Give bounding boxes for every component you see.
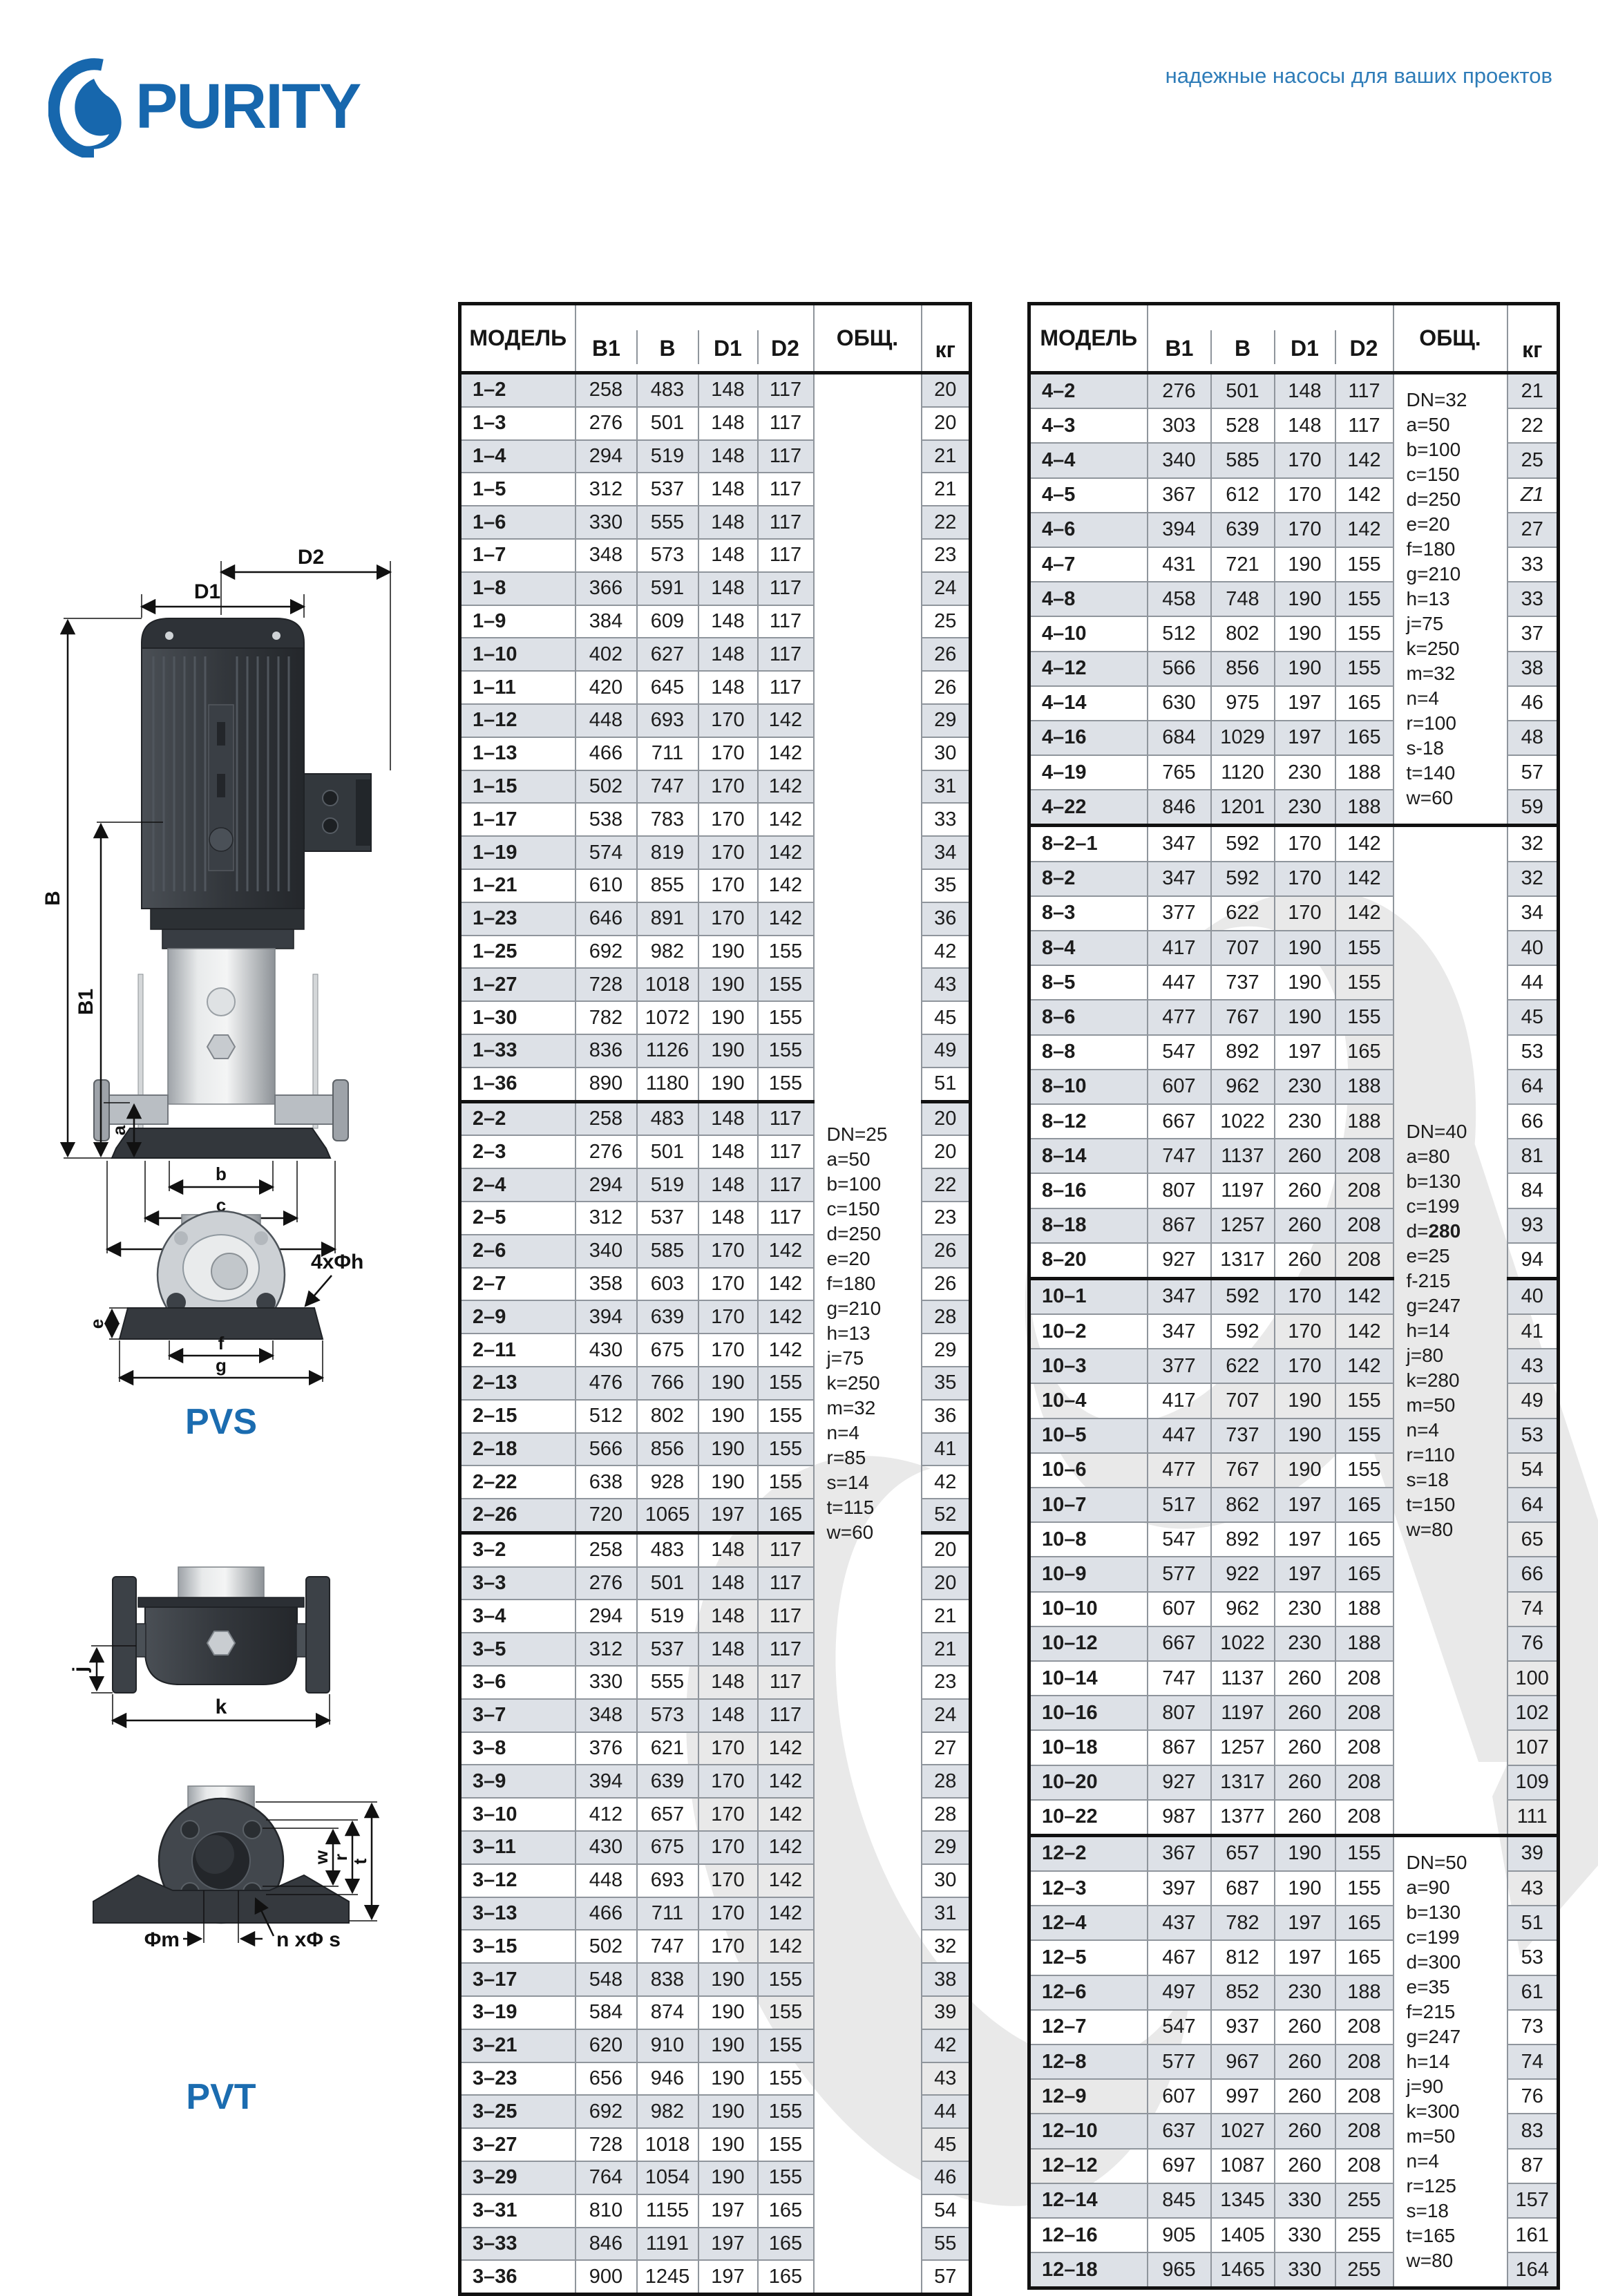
column-header-b1: B1 [576,304,637,373]
model-cell: 1–25 [460,936,576,969]
dimension-cell: 905 [1148,2218,1211,2252]
dimension-cell: 537 [637,1202,698,1235]
weight-cell: 34 [922,836,971,869]
general-dimensions-note: DN=50a=90b=130c=199d=300e=35f=215g=247h=… [1394,1835,1507,2288]
dimension-cell: 197 [1275,1522,1335,1557]
dimension-cell: 483 [637,1533,698,1566]
note-line: g=247 [1407,2024,1507,2049]
dimension-cell: 810 [576,2194,637,2228]
model-cell: 1–19 [460,836,576,869]
weight-cell: 35 [922,869,971,902]
dimension-cell: 165 [1335,1940,1394,1975]
dimension-cell: 165 [1335,686,1394,721]
dimension-cell: 148 [698,1666,758,1699]
dimension-cell: 592 [1211,1278,1275,1314]
dimension-cell: 155 [758,1465,814,1499]
dimension-cell: 517 [1148,1488,1211,1522]
logo-swirl [75,79,121,149]
dimension-cell: 155 [758,1068,814,1101]
dimension-cell: 577 [1148,2044,1211,2079]
dimension-cell: 852 [1211,1975,1275,2010]
note-line: DN=40 [1407,1119,1507,1144]
dimension-cell: 170 [698,1831,758,1864]
weight-cell: 24 [922,1699,971,1732]
dimension-cell: 155 [758,2128,814,2161]
dimension-cell: 155 [1335,582,1394,616]
dimension-cell: 170 [698,836,758,869]
weight-cell: 26 [922,638,971,671]
dimension-cell: 155 [758,2062,814,2096]
dimension-cell: 148 [698,605,758,638]
note-line: h=13 [1407,587,1507,611]
weight-cell: 25 [922,605,971,638]
note-line: b=130 [1407,1169,1507,1194]
weight-cell: 20 [922,1567,971,1600]
left-port-flange [113,1577,136,1693]
note-line: r=110 [1407,1443,1507,1468]
model-cell: 4–5 [1029,478,1148,513]
dimension-cell: 607 [1148,2079,1211,2114]
dimension-cell: 188 [1335,1626,1394,1661]
dimension-cell: 165 [1335,1557,1394,1591]
column-header-кг: кг [922,304,971,373]
dimension-cell: 962 [1211,1592,1275,1626]
dimension-cell: 190 [1275,965,1335,1000]
dimension-cell: 260 [1275,1243,1335,1279]
dimension-cell: 367 [1148,1835,1211,1871]
note-line: f-215 [1407,1269,1507,1293]
dimension-cell: 1377 [1211,1800,1275,1836]
dimension-cell: 856 [1211,652,1275,686]
dimension-cell: 767 [1211,1000,1275,1034]
dimension-cell: 667 [1148,1626,1211,1661]
dimension-cell: 692 [576,2095,637,2128]
dimension-cell: 197 [698,2260,758,2294]
note-line: f=180 [1407,537,1507,562]
note-line: j=75 [827,1346,921,1371]
weight-cell: 39 [922,1996,971,2029]
dimension-cell: 188 [1335,1104,1394,1139]
bolt-callout-top: 4xΦh [311,1251,363,1273]
model-cell: 3–36 [460,2260,576,2294]
bolt-callout-bottom: n xΦ s [276,1928,341,1951]
model-cell: 8–10 [1029,1070,1148,1104]
note-line: b=100 [1407,437,1507,462]
dimension-cell: 190 [1275,931,1335,965]
dim-a-label: a [108,1125,129,1135]
dimension-cell: 638 [576,1465,637,1499]
dimension-cell: 142 [1335,443,1394,477]
dimension-cell: 260 [1275,1173,1335,1208]
weight-cell: 40 [1507,1278,1559,1314]
weight-cell: 66 [1507,1104,1559,1139]
dimension-cell: 836 [576,1034,637,1068]
dimension-cell: 697 [1148,2149,1211,2183]
dimension-cell: 208 [1335,1139,1394,1173]
model-cell: 1–11 [460,671,576,704]
dimension-cell: 348 [576,539,637,572]
model-cell: 8–8 [1029,1035,1148,1070]
dimension-cell: 190 [1275,1383,1335,1418]
model-cell: 10–6 [1029,1453,1148,1488]
dimension-cell: 117 [758,1567,814,1600]
weight-cell: 44 [1507,965,1559,1000]
model-cell: 12–14 [1029,2183,1148,2218]
dimension-cell: 1022 [1211,1104,1275,1139]
weight-cell: 42 [922,1465,971,1499]
dimension-cell: 208 [1335,1800,1394,1836]
dimension-cell: 347 [1148,1278,1211,1314]
weight-cell: 23 [922,539,971,572]
dimension-cell: 117 [758,1168,814,1202]
weight-cell: 20 [922,1533,971,1566]
dimension-cell: 142 [1335,513,1394,547]
column-header-d1: D1 [1275,304,1335,373]
weight-cell: 22 [1507,408,1559,443]
dimension-cell: 148 [698,1567,758,1600]
dimension-cell: 1317 [1211,1765,1275,1800]
dimension-cell: 260 [1275,1730,1335,1765]
dimension-cell: 148 [698,638,758,671]
model-cell: 4–16 [1029,721,1148,755]
note-line: w=60 [1407,786,1507,810]
weight-cell: 34 [1507,896,1559,931]
dimension-cell: 639 [1211,513,1275,547]
dimension-cell: 190 [698,1367,758,1400]
dimension-cell: 707 [1211,931,1275,965]
model-cell: 12–16 [1029,2218,1148,2252]
model-cell: 2–13 [460,1367,576,1400]
dimension-cell: 512 [1148,616,1211,651]
dimension-cell: 402 [576,638,637,671]
model-cell: 1–36 [460,1068,576,1101]
model-cell: 3–7 [460,1699,576,1732]
model-cell: 4–8 [1029,582,1148,616]
weight-cell: 33 [1507,582,1559,616]
dimension-cell: 208 [1335,1730,1394,1765]
dimension-cell: 687 [1211,1871,1275,1906]
dimension-cell: 397 [1148,1871,1211,1906]
dimension-cell: 547 [1148,2010,1211,2044]
weight-cell: 161 [1507,2218,1559,2252]
dimension-cell: 170 [1275,478,1335,513]
dimension-cell: 819 [637,836,698,869]
note-line: r=100 [1407,711,1507,736]
model-cell: 2–4 [460,1168,576,1202]
table-header-row: МОДЕЛЬ B1 B D1 D2 ОБЩ. кг [460,304,971,373]
dimension-cell: 782 [576,1001,637,1034]
dim-r-label: r [330,1854,351,1861]
dim-g-label: g [216,1355,227,1376]
model-cell: 1–3 [460,407,576,440]
dimension-cell: 1465 [1211,2252,1275,2288]
dimension-cell: 547 [1148,1522,1211,1557]
pvs-front-view: D2 D1 B B1 a b c d [41,546,390,1253]
dim-b1-label: B1 [75,989,97,1015]
dimension-cell: 190 [698,2128,758,2161]
dimension-cell: 447 [1148,965,1211,1000]
pvt-label: PVT [186,2077,256,2117]
dimension-cell: 867 [1148,1208,1211,1243]
dimension-cell: 276 [1148,373,1211,409]
note-line: w=80 [1407,1517,1507,1542]
weight-cell: 164 [1507,2252,1559,2288]
dimension-cell: 519 [637,1600,698,1633]
dimension-cell: 1317 [1211,1243,1275,1279]
dimension-cell: 188 [1335,1975,1394,2010]
dimension-cell: 394 [576,1765,637,1798]
dimension-cell: 684 [1148,721,1211,755]
note-line: e=20 [1407,512,1507,537]
dimension-cell: 170 [698,737,758,770]
note-line: s-18 [1407,736,1507,761]
dimension-cell: 117 [758,1533,814,1566]
dimension-cell: 1120 [1211,755,1275,790]
dimension-cell: 728 [576,968,637,1001]
dimension-cell: 255 [1335,2218,1394,2252]
note-line: a=50 [827,1147,921,1172]
model-cell: 3–2 [460,1533,576,1566]
note-line: k=250 [827,1371,921,1396]
dimension-cell: 1126 [637,1034,698,1068]
dimension-cell: 1054 [637,2161,698,2194]
dimension-cell: 117 [1335,373,1394,409]
dimension-cell: 208 [1335,1243,1394,1279]
dimension-cell: 142 [758,1798,814,1831]
dimension-cell: 155 [1335,1835,1394,1871]
dimension-cell: 142 [758,869,814,902]
note-line: k=250 [1407,636,1507,661]
dimension-cell: 142 [758,1864,814,1897]
dimension-cell: 477 [1148,1000,1211,1034]
dimension-cell: 276 [576,407,637,440]
dimension-cell: 155 [1335,616,1394,651]
note-line: w=80 [1407,2248,1507,2273]
weight-cell: 100 [1507,1661,1559,1696]
note-line: w=60 [827,1520,921,1545]
dimension-cell: 170 [1275,1314,1335,1349]
dimension-cell: 190 [1275,1871,1335,1906]
dimension-cell: 208 [1335,1661,1394,1696]
dimension-cell: 142 [1335,1349,1394,1383]
dimension-cell: 142 [1335,862,1394,896]
weight-cell: 76 [1507,2079,1559,2114]
dimension-cell: 258 [576,373,637,407]
dimension-cell: 330 [1275,2252,1335,2288]
dimension-cell: 142 [758,704,814,737]
model-cell: 3–13 [460,1897,576,1930]
model-cell: 12–2 [1029,1835,1148,1871]
dimension-cell: 1245 [637,2260,698,2294]
dimension-cell: 639 [637,1300,698,1334]
dim-m-label: Φm [144,1928,180,1951]
pvs-label: PVS [185,1402,257,1442]
dimension-cell: 190 [698,1068,758,1101]
dimension-cell: 577 [1148,1557,1211,1591]
pump-dimension-diagrams: D2 D1 B B1 a b c d e [35,546,463,2135]
weight-cell: 43 [922,968,971,1001]
dimension-cell: 366 [576,572,637,605]
note-line: m=32 [827,1396,921,1421]
dimension-cell: 190 [698,1034,758,1068]
weight-cell: 73 [1507,2010,1559,2044]
dimension-cell: 747 [637,1930,698,1963]
dimension-cell: 276 [576,1567,637,1600]
pvt-side-view: j k [69,1567,330,1725]
dimension-cell: 512 [576,1400,637,1433]
model-cell: 8–20 [1029,1243,1148,1279]
weight-cell: 49 [922,1034,971,1068]
dimension-cell: 707 [1211,1383,1275,1418]
note-line: d=300 [1407,1950,1507,1975]
weight-cell: 48 [1507,721,1559,755]
weight-cell: 84 [1507,1173,1559,1208]
dimension-cell: 197 [1275,1557,1335,1591]
dimension-cell: 630 [1148,686,1211,721]
weight-cell: 83 [1507,2114,1559,2148]
dimension-cell: 922 [1211,1557,1275,1591]
dimension-cell: 417 [1148,931,1211,965]
dimension-cell: 117 [758,1101,814,1135]
model-cell: 3–33 [460,2228,576,2261]
model-cell: 4–12 [1029,652,1148,686]
note-line: s=18 [1407,1468,1507,1492]
dimension-cell: 117 [758,1699,814,1732]
model-cell: 1–30 [460,1001,576,1034]
model-cell: 4–10 [1029,616,1148,651]
dimension-cell: 767 [1211,1453,1275,1488]
dimensions-table-pvs-4-12: МОДЕЛЬ B1 B D1 D2 ОБЩ. кг 4–227650114811… [1027,302,1560,2290]
dimension-cell: 190 [1275,616,1335,651]
dimension-cell: 188 [1335,755,1394,790]
dimension-cell: 997 [1211,2079,1275,2114]
dimension-cell: 170 [698,1897,758,1930]
weight-cell: 49 [1507,1383,1559,1418]
dimension-cell: 117 [758,1600,814,1633]
dimension-cell: 190 [1275,547,1335,582]
dimension-cell: 117 [758,638,814,671]
dimension-cell: 260 [1275,1139,1335,1173]
dimension-cell: 312 [576,1633,637,1666]
dimension-cell: 260 [1275,1765,1335,1800]
weight-cell: 45 [922,2128,971,2161]
dimension-cell: 728 [576,2128,637,2161]
note-line: d=250 [827,1222,921,1246]
model-cell: 3–31 [460,2194,576,2228]
dimension-cell: 170 [1275,513,1335,547]
dimension-cell: 170 [1275,1278,1335,1314]
model-cell: 3–12 [460,1864,576,1897]
note-line: t=150 [1407,1492,1507,1517]
dimension-cell: 170 [1275,826,1335,862]
weight-cell: 33 [922,803,971,836]
dimension-cell: 142 [758,1334,814,1367]
dimension-cell: 667 [1148,1104,1211,1139]
note-line: h=14 [1407,1318,1507,1343]
dimension-cell: 855 [637,869,698,902]
model-cell: 2–18 [460,1433,576,1466]
dimension-cell: 711 [637,737,698,770]
weight-cell: 43 [1507,1349,1559,1383]
weight-cell: 37 [1507,616,1559,651]
dimension-cell: 188 [1335,1592,1394,1626]
dimension-cell: 537 [637,1633,698,1666]
model-cell: 12–18 [1029,2252,1148,2288]
model-cell: 3–21 [460,2029,576,2062]
dimension-cell: 711 [637,1897,698,1930]
dimension-cell: 448 [576,704,637,737]
dimension-cell: 155 [758,1367,814,1400]
dimension-cell: 466 [576,737,637,770]
model-cell: 12–12 [1029,2149,1148,2183]
dimension-cell: 377 [1148,1349,1211,1383]
dimension-cell: 477 [1148,1453,1211,1488]
model-cell: 12–10 [1029,2114,1148,2148]
weight-cell: 23 [922,1202,971,1235]
dimension-cell: 155 [758,1400,814,1433]
model-cell: 3–25 [460,2095,576,2128]
dimension-cell: 720 [576,1499,637,1533]
weight-cell: 20 [922,373,971,407]
weight-cell: 157 [1507,2183,1559,2218]
general-dimensions-note: DN=40a=80b=130c=199d=280e=25f-215g=247h=… [1394,826,1507,1835]
note-line: b=100 [827,1172,921,1197]
weight-cell: 45 [922,1001,971,1034]
note-line: d=280 [1407,1219,1507,1244]
column-header-model: МОДЕЛЬ [1029,304,1148,373]
dimension-cell: 645 [637,671,698,704]
weight-cell: 102 [1507,1696,1559,1730]
dimension-cell: 155 [1335,1419,1394,1453]
model-cell: 8–16 [1029,1173,1148,1208]
dimension-cell: 165 [758,2260,814,2294]
table-header-row: МОДЕЛЬ B1 B D1 D2 ОБЩ. кг [1029,304,1559,373]
dimension-cell: 574 [576,836,637,869]
dimension-cell: 592 [1211,1314,1275,1349]
dimension-cell: 148 [698,1202,758,1235]
dimension-cell: 1405 [1211,2218,1275,2252]
dimension-cell: 155 [1335,1000,1394,1034]
dimension-cell: 155 [1335,1453,1394,1488]
weight-cell: 51 [922,1068,971,1101]
dimension-cell: 294 [576,1600,637,1633]
dimension-cell: 142 [1335,896,1394,931]
dim-d2-label: D2 [298,546,324,569]
weight-cell: 54 [1507,1453,1559,1488]
dimension-cell: 188 [1335,1070,1394,1104]
dimension-cell: 230 [1275,1592,1335,1626]
column-header-b1: B1 [1148,304,1211,373]
dimension-cell: 117 [758,440,814,473]
dimension-cell: 197 [698,2228,758,2261]
dim-b-label: B [41,891,64,906]
dimension-cell: 555 [637,506,698,539]
dimension-cell: 117 [758,373,814,407]
dimension-cell: 437 [1148,1906,1211,1940]
dimensions-table-pvs-1-3: МОДЕЛЬ B1 B D1 D2 ОБЩ. кг 1–225848314811… [458,302,972,2296]
dimension-cell: 117 [758,407,814,440]
weight-cell: 109 [1507,1765,1559,1800]
column-header-b: B [1211,304,1275,373]
dimension-cell: 148 [698,1168,758,1202]
model-cell: 1–6 [460,506,576,539]
note-line: h=14 [1407,2049,1507,2074]
dimension-cell: 117 [758,1633,814,1666]
weight-cell: 20 [922,407,971,440]
dimension-cell: 190 [698,1001,758,1034]
weight-cell: 43 [922,2062,971,2096]
model-cell: 1–7 [460,539,576,572]
